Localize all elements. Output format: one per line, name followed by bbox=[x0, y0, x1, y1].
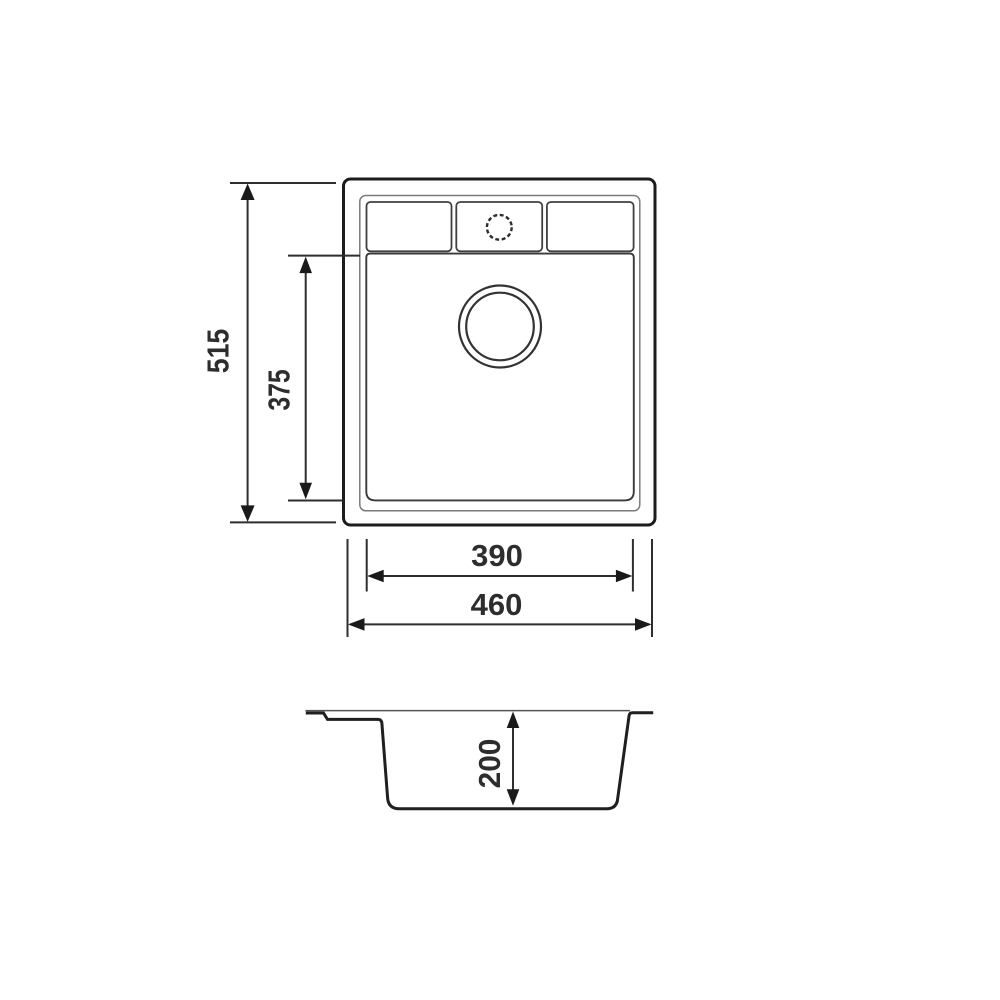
svg-text:200: 200 bbox=[473, 739, 508, 789]
svg-text:460: 460 bbox=[471, 587, 523, 622]
svg-text:375: 375 bbox=[262, 369, 296, 410]
svg-text:390: 390 bbox=[471, 538, 523, 573]
svg-text:515: 515 bbox=[202, 329, 236, 373]
